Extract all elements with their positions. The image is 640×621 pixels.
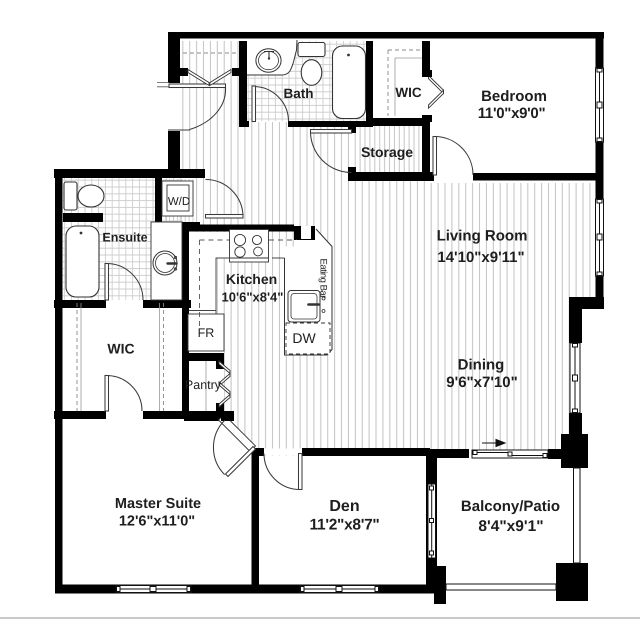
svg-text:Living Room: Living Room xyxy=(437,228,528,245)
svg-text:DW: DW xyxy=(292,330,316,346)
svg-text:Bedroom: Bedroom xyxy=(481,88,547,105)
svg-text:Balcony/Patio: Balcony/Patio xyxy=(461,498,560,515)
svg-text:14'10"x9'11": 14'10"x9'11" xyxy=(437,249,524,266)
svg-text:Den: Den xyxy=(329,498,359,515)
svg-text:12'6"x11'0": 12'6"x11'0" xyxy=(119,514,195,530)
svg-text:Kitchen: Kitchen xyxy=(226,271,277,287)
svg-text:WIC: WIC xyxy=(395,85,421,100)
svg-text:Storage: Storage xyxy=(361,144,413,160)
svg-text:Dining: Dining xyxy=(458,357,505,374)
svg-text:10'6"x8'4": 10'6"x8'4" xyxy=(222,290,284,305)
svg-text:8'4"x9'1": 8'4"x9'1" xyxy=(478,518,543,535)
svg-text:Master Suite: Master Suite xyxy=(115,496,201,512)
svg-text:Ensuite: Ensuite xyxy=(102,231,147,245)
svg-text:11'0"x9'0": 11'0"x9'0" xyxy=(478,105,546,122)
svg-text:Bath: Bath xyxy=(284,86,314,101)
svg-text:Pantry: Pantry xyxy=(185,378,222,392)
svg-text:W/D: W/D xyxy=(168,196,190,208)
svg-text:11'2"x8'7": 11'2"x8'7" xyxy=(310,517,380,534)
svg-text:Eating Bar: Eating Bar xyxy=(318,259,329,299)
svg-text:FR: FR xyxy=(198,326,215,340)
svg-text:9'6"x7'10": 9'6"x7'10" xyxy=(446,374,517,391)
svg-text:WIC: WIC xyxy=(107,341,134,357)
